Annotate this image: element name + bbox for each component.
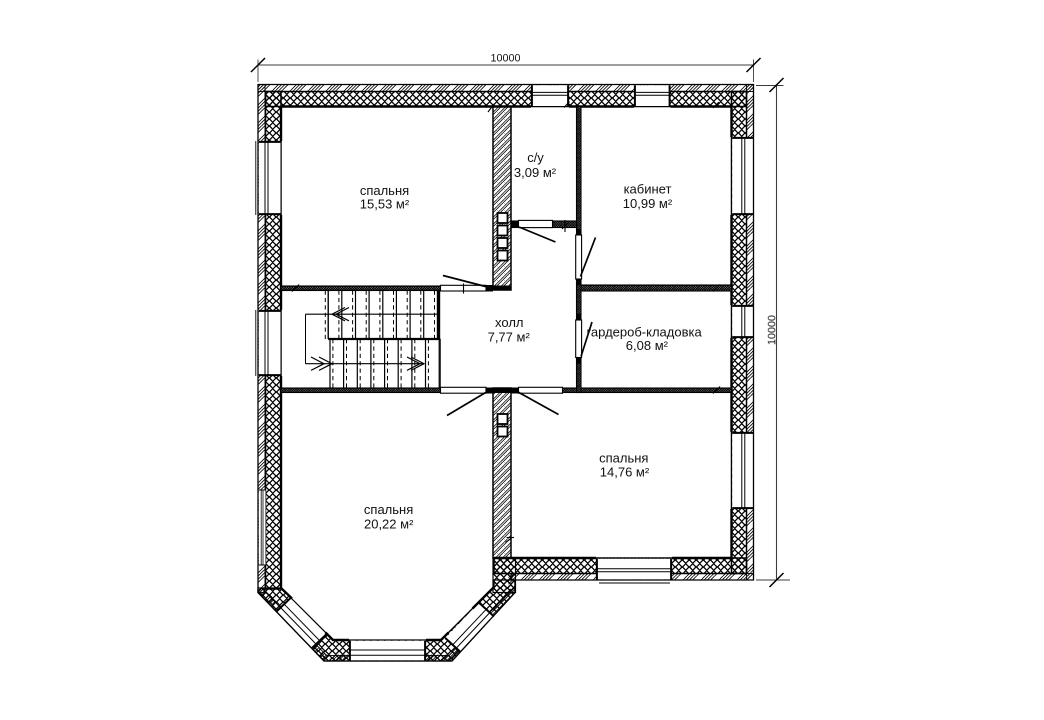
svg-text:10000: 10000 <box>766 315 778 345</box>
svg-text:3,09 м²: 3,09 м² <box>514 165 557 180</box>
svg-text:20,22 м²: 20,22 м² <box>364 516 414 531</box>
svg-text:6,08 м²: 6,08 м² <box>626 338 669 353</box>
svg-text:10,99 м²: 10,99 м² <box>623 196 673 211</box>
svg-text:10000: 10000 <box>490 52 520 64</box>
svg-text:кабинет: кабинет <box>624 182 672 197</box>
svg-text:спальня: спальня <box>599 451 648 466</box>
svg-text:7,77 м²: 7,77 м² <box>488 330 531 345</box>
svg-text:холл: холл <box>495 315 523 330</box>
svg-text:14,76 м²: 14,76 м² <box>600 465 650 480</box>
svg-text:15,53 м²: 15,53 м² <box>360 197 410 212</box>
svg-text:спальня: спальня <box>364 502 413 517</box>
svg-text:с/у: с/у <box>527 150 544 165</box>
